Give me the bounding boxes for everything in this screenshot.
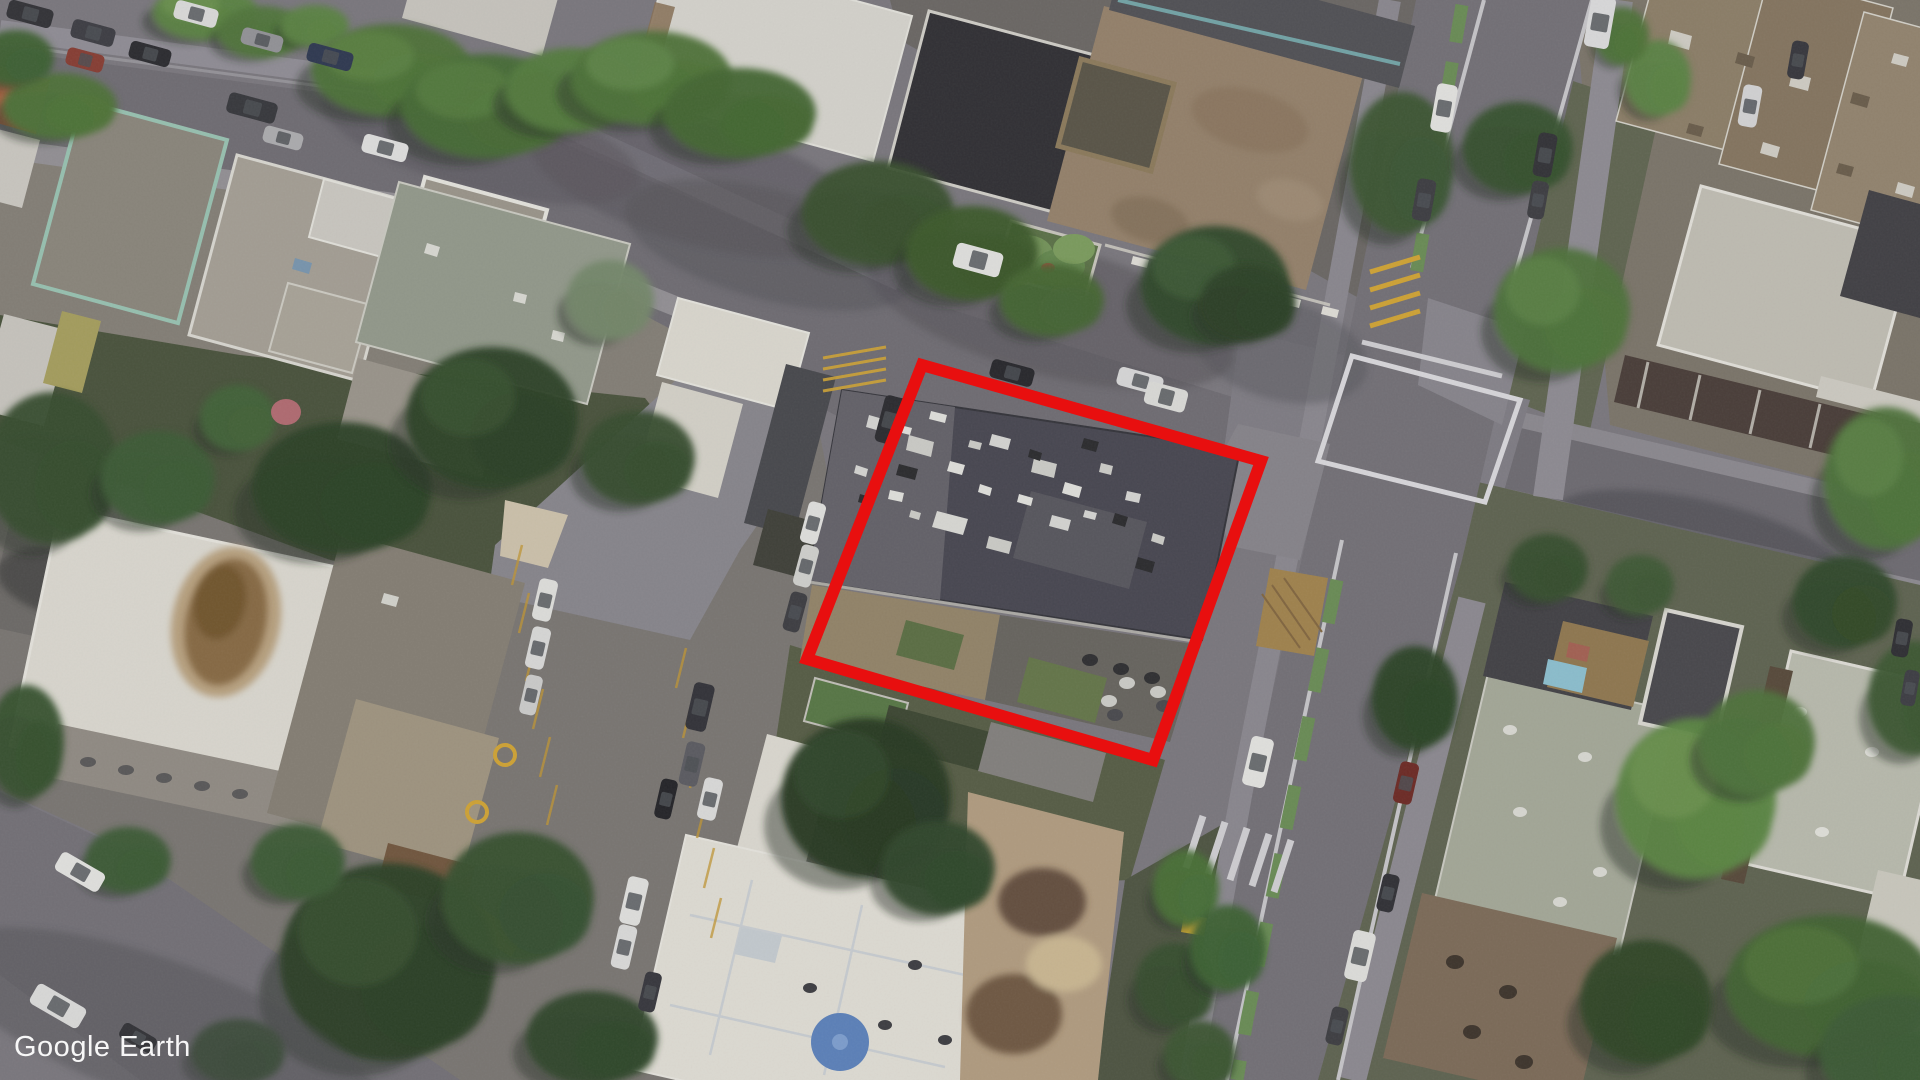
svg-text:Google Earth: Google Earth [14,1031,191,1063]
